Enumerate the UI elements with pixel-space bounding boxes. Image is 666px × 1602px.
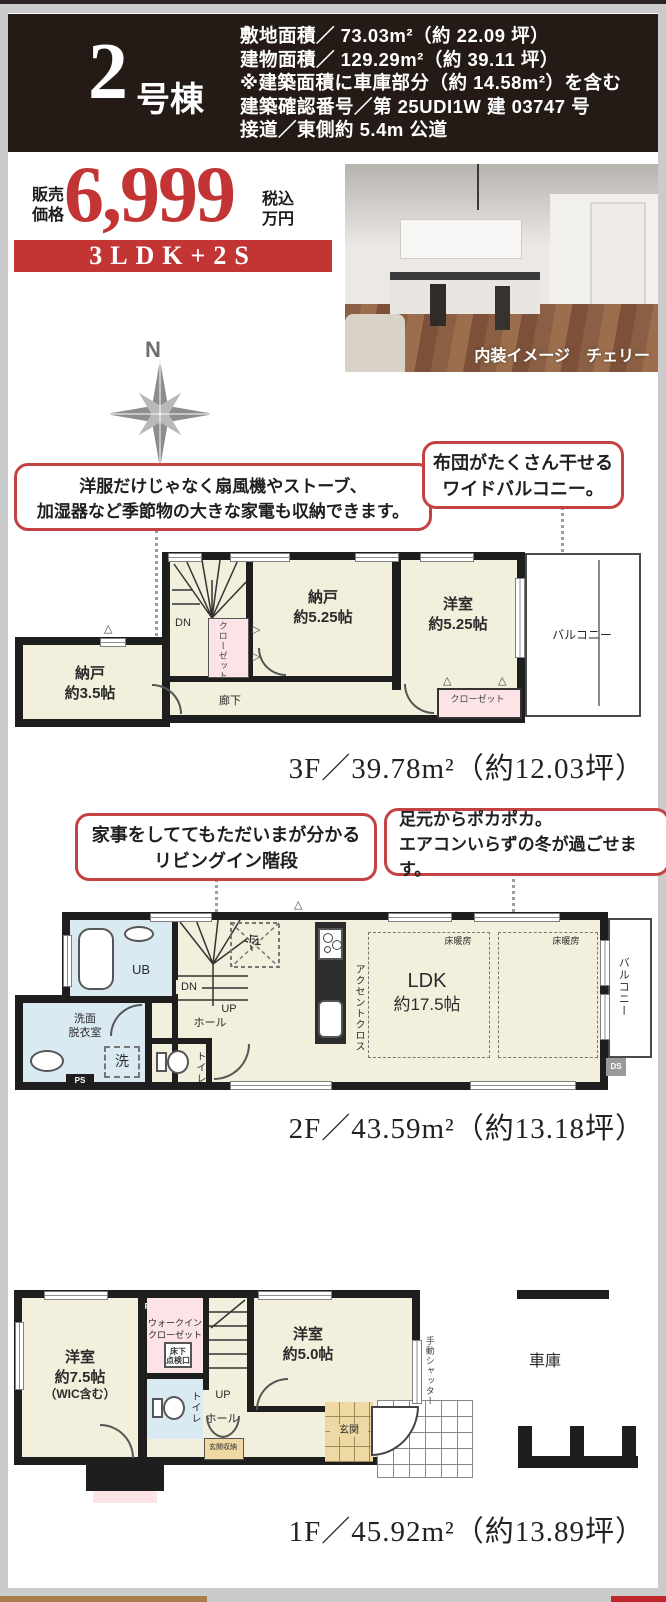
entry-step-mat [93,1491,157,1503]
window [150,913,212,922]
room-yoshitsu525-label: 洋室 約5.25帖 [408,595,508,634]
price-label: 販売 価格 [32,186,64,226]
leader-line [155,530,158,642]
callout-heating: 足元からポカポカ。 エアコンいらずの冬が過ごせます。 [384,808,666,876]
floor1-area-label: 1F／45.92m²（約13.89坪） [240,1508,645,1550]
interior-photo: 内装イメージ チェリー [345,164,658,372]
floor-heating-zone [368,932,490,1058]
callout-storage: 洋服だけじゃなく扇風機やストーブ、 加湿器など季節物の大きな家電も収納できます。 [14,463,432,531]
folding-door-mark: ▷ [252,652,260,663]
window [388,913,452,922]
accent-cloth-label: アクセントクロス [352,958,365,1058]
window [474,913,560,922]
window [420,553,474,562]
window [63,935,72,987]
photo-sofa [345,314,405,372]
window [100,638,126,647]
hall-label: ホール [188,1016,232,1030]
garage-pillar [570,1426,584,1458]
corridor-label: 廊下 [210,694,250,708]
floor2-area-label: 2F／43.59m²（約13.18坪） [240,1105,645,1147]
spec-line: ※建築面積に車庫部分（約 14.58m²）を含む [240,71,622,95]
price-amount: 6,999 [64,150,234,241]
callout-balcony: 布団がたくさん干せる ワイドバルコニー。 [422,441,624,509]
spec-line: 建物面積／ 129.29m²（約 39.11 坪） [240,48,622,72]
window [412,1340,422,1404]
closet-3f-bottom-label: クローゼット [439,694,516,706]
stairs-up-label: UP [216,1002,242,1016]
header-band: 2 号棟 敷地面積／ 73.03m²（約 22.09 坪） 建物面積／ 129.… [8,14,658,152]
photo-stool [430,284,446,326]
spec-line: 建築確認番号／第 25UDI1W 建 03747 号 [240,95,622,119]
wall [62,996,172,1003]
top-border [0,0,666,4]
room-nando35-label: 納戸 約3.5帖 [40,664,140,703]
senmen-label: 洗面 脱衣室 [50,1012,120,1041]
genkan-label: 玄関 [330,1424,368,1437]
hatch-label: 床下 点検口 [166,1344,190,1365]
price-unit: 税込 万円 [262,190,294,230]
burner [332,940,342,950]
wall [206,1044,212,1090]
unit-number: 2 [88,32,128,112]
stairs-dn-label: DN [168,616,198,630]
photo-pendant-light [477,164,479,210]
wall [253,676,399,682]
closet-3f-label: クローゼット [216,621,228,675]
balcony-2f-label: バルコニー [616,952,630,1022]
room-nando525-label: 納戸 約5.25帖 [273,588,373,627]
stove [318,928,343,960]
bath-sink [124,926,154,942]
shutter-label: 手動シャッター [423,1336,435,1406]
window [600,940,610,986]
toilet-tank [152,1398,163,1418]
toilet-bowl [163,1396,185,1420]
toilet-label: トイレ [193,1047,206,1087]
garage-pillar [518,1426,532,1458]
garage-label: 車庫 [515,1352,575,1373]
closet-door-mark: △ [443,676,451,687]
ub-label: UB [126,962,156,979]
floor-plan-type-banner: 3LDK+2S [14,240,332,272]
photo-stool [495,286,510,330]
burner [323,933,333,943]
closet-3f [208,618,249,678]
photo-kitchen-cabinets [400,219,522,259]
unit-suffix: 号棟 [136,72,204,121]
window [355,553,399,562]
floor-heating-label: 床暖房 [430,936,486,948]
callout-stairs: 家事をしててもただいまが分かる リビングイン階段 [75,813,377,881]
bottom-right-bar [611,1596,666,1602]
ds-label: DS [606,1062,626,1072]
bottom-left-bar [0,1596,207,1602]
vent-mark: △ [294,900,302,911]
window [230,1081,332,1090]
flyer-page: 2 号棟 敷地面積／ 73.03m²（約 22.09 坪） 建物面積／ 129.… [0,0,666,1602]
toilet-bowl [167,1050,189,1074]
floor-heating-zone [498,932,598,1058]
room-yoshitsu75-label: 洋室 約7.5帖 （WIC含む） [28,1348,132,1403]
kitchen-sink [318,1000,343,1038]
burner [324,946,331,953]
closet-door-mark: △ [498,676,506,687]
underfloor-hatch: 床下 点検口 [164,1342,192,1368]
photo-caption: 内装イメージ チェリー [474,342,650,366]
washer-label: 洗 [112,1052,132,1070]
folding-door-mark: ▷ [252,625,260,636]
room-yoshitsu50-label: 洋室 約5.0帖 [258,1325,358,1364]
vent-mark: △ [104,624,112,635]
stairs-1f [209,1298,247,1388]
window [168,553,202,562]
photo-counter-base [390,280,540,314]
entry-step [86,1465,164,1491]
balcony-3f-label: バルコニー [530,628,634,644]
window [230,553,290,562]
property-specs: 敷地面積／ 73.03m²（約 22.09 坪） 建物面積／ 129.29m²（… [240,24,622,142]
compass-icon [110,360,210,468]
window [600,994,610,1040]
wall [152,1038,212,1044]
window [44,1291,108,1300]
ps-label: PS [66,1076,94,1086]
window [258,1291,332,1300]
bathtub [78,928,114,990]
window [470,1081,576,1090]
stairs-up-label: UP [208,1388,238,1402]
toilet-tank [156,1052,167,1072]
spec-line: 接道／東側約 5.4m 公道 [240,118,622,142]
stairs-dn-label: DN [176,980,202,994]
washbasin [30,1050,64,1072]
window [515,578,525,658]
wall [247,1298,254,1412]
garage-top-wall [517,1290,609,1299]
entrance-storage-label: 玄関収納 [204,1443,242,1452]
wic-label: ウォークイン クローゼット [146,1318,204,1341]
spec-line: 敷地面積／ 73.03m²（約 22.09 坪） [240,24,622,48]
wall [392,560,401,690]
garage-pillar [622,1426,636,1458]
stairs-3f [172,560,246,620]
floor-heating-label: 床暖房 [538,936,594,948]
wall [145,1003,152,1090]
window [15,1322,24,1390]
floor3-area-label: 3F／39.78m²（約12.03坪） [240,745,645,787]
